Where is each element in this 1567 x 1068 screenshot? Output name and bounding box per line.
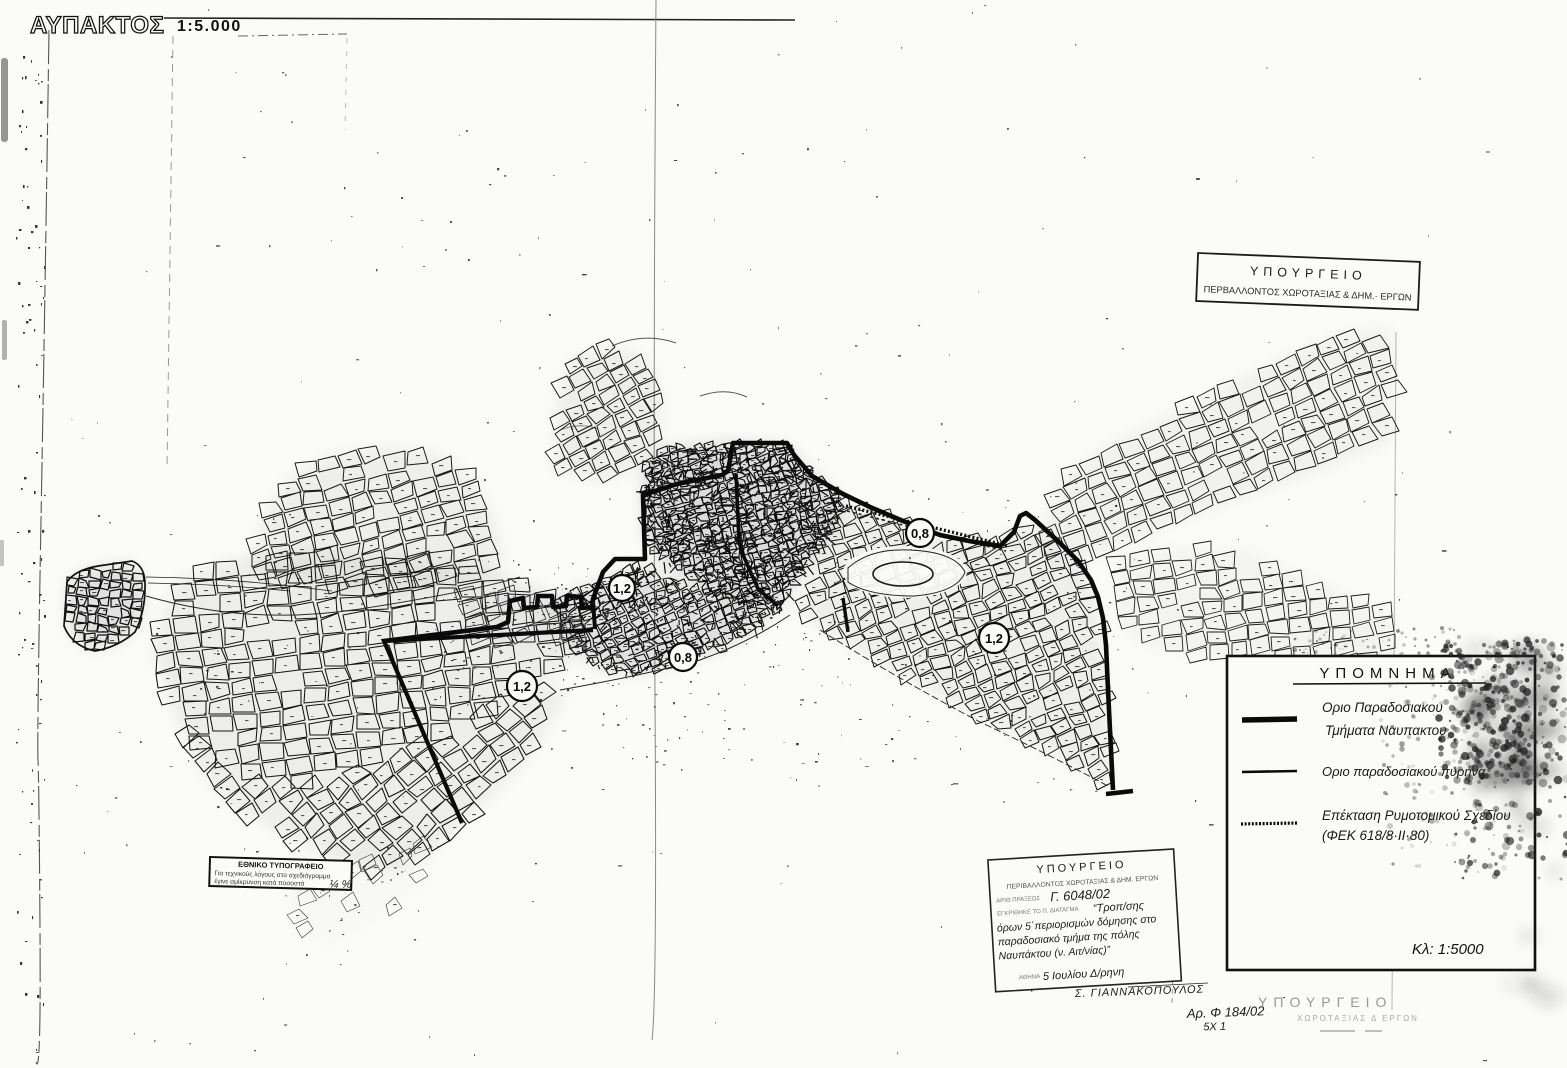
svg-text:1,2: 1,2 [985,631,1003,646]
svg-text:1:5.000: 1:5.000 [177,18,242,35]
svg-text:¼ %: ¼ % [329,878,352,891]
svg-text:0,8: 0,8 [911,526,929,541]
svg-text:Επέκταση Ρυμοτομικού Σχεδίου: Επέκταση Ρυμοτομικού Σχεδίου [1322,808,1511,823]
svg-text:Κλ: 1:5000: Κλ: 1:5000 [1412,941,1484,958]
svg-text:0,8: 0,8 [674,650,692,665]
svg-text:ΑΘΗΝΑ: ΑΘΗΝΑ [1019,974,1041,981]
svg-text:Αρ. Φ 184/02: Αρ. Φ 184/02 [1186,1003,1266,1021]
svg-text:1,2: 1,2 [613,581,631,596]
svg-text:ΥΠΟΜΝΗΜΑ: ΥΠΟΜΝΗΜΑ [1319,665,1456,682]
svg-text:(ΦΕΚ 618/8·ΙΙ·80): (ΦΕΚ 618/8·ΙΙ·80) [1322,828,1429,843]
svg-text:ΑΥΠΑΚΤΟΣ: ΑΥΠΑΚΤΟΣ [30,12,164,39]
svg-text:Τμήματα Ναυπακτου: Τμήματα Ναυπακτου [1325,723,1447,738]
svg-text:ΥΠΟΥΡΓΕΙΟ: ΥΠΟΥΡΓΕΙΟ [1258,994,1392,1010]
svg-text:1,2: 1,2 [513,679,531,694]
svg-text:5Χ 1: 5Χ 1 [1203,1021,1226,1034]
svg-text:ΧΩΡΟΤΑΞΙΑΣ Δ ΕΡΓΩΝ: ΧΩΡΟΤΑΞΙΑΣ Δ ΕΡΓΩΝ [1297,1014,1419,1023]
